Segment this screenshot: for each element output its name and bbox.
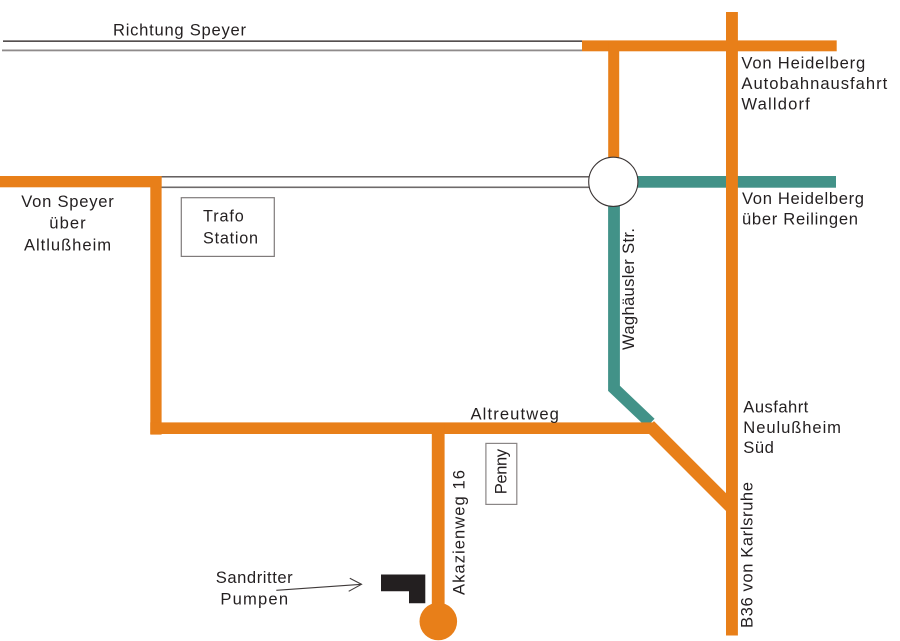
svg-text:Autobahnausfahrt: Autobahnausfahrt	[741, 74, 887, 93]
svg-text:über Reilingen: über Reilingen	[742, 209, 858, 228]
svg-text:Von Heidelberg: Von Heidelberg	[741, 54, 865, 73]
svg-text:über: über	[49, 214, 86, 233]
svg-text:Sandritter: Sandritter	[216, 568, 293, 587]
svg-text:Waghäusler Str.: Waghäusler Str.	[619, 228, 638, 350]
svg-text:Pumpen: Pumpen	[220, 590, 288, 609]
svg-text:Neulußheim: Neulußheim	[743, 418, 841, 437]
svg-text:Richtung Speyer: Richtung Speyer	[113, 20, 246, 39]
svg-text:Ausfahrt: Ausfahrt	[743, 398, 808, 417]
svg-text:Altlußheim: Altlußheim	[24, 235, 111, 254]
svg-text:Von Speyer: Von Speyer	[21, 192, 114, 211]
svg-text:Altreutweg: Altreutweg	[471, 404, 559, 423]
svg-text:Penny: Penny	[492, 448, 511, 494]
svg-text:Station: Station	[203, 230, 258, 248]
svg-text:Von Heidelberg: Von Heidelberg	[742, 189, 864, 208]
svg-text:Süd: Süd	[743, 438, 774, 457]
svg-text:Trafo: Trafo	[203, 208, 244, 226]
svg-text:Akazienweg 16: Akazienweg 16	[450, 470, 469, 595]
svg-text:Walldorf: Walldorf	[741, 95, 810, 114]
svg-text:B36 von Karlsruhe: B36 von Karlsruhe	[738, 482, 757, 628]
